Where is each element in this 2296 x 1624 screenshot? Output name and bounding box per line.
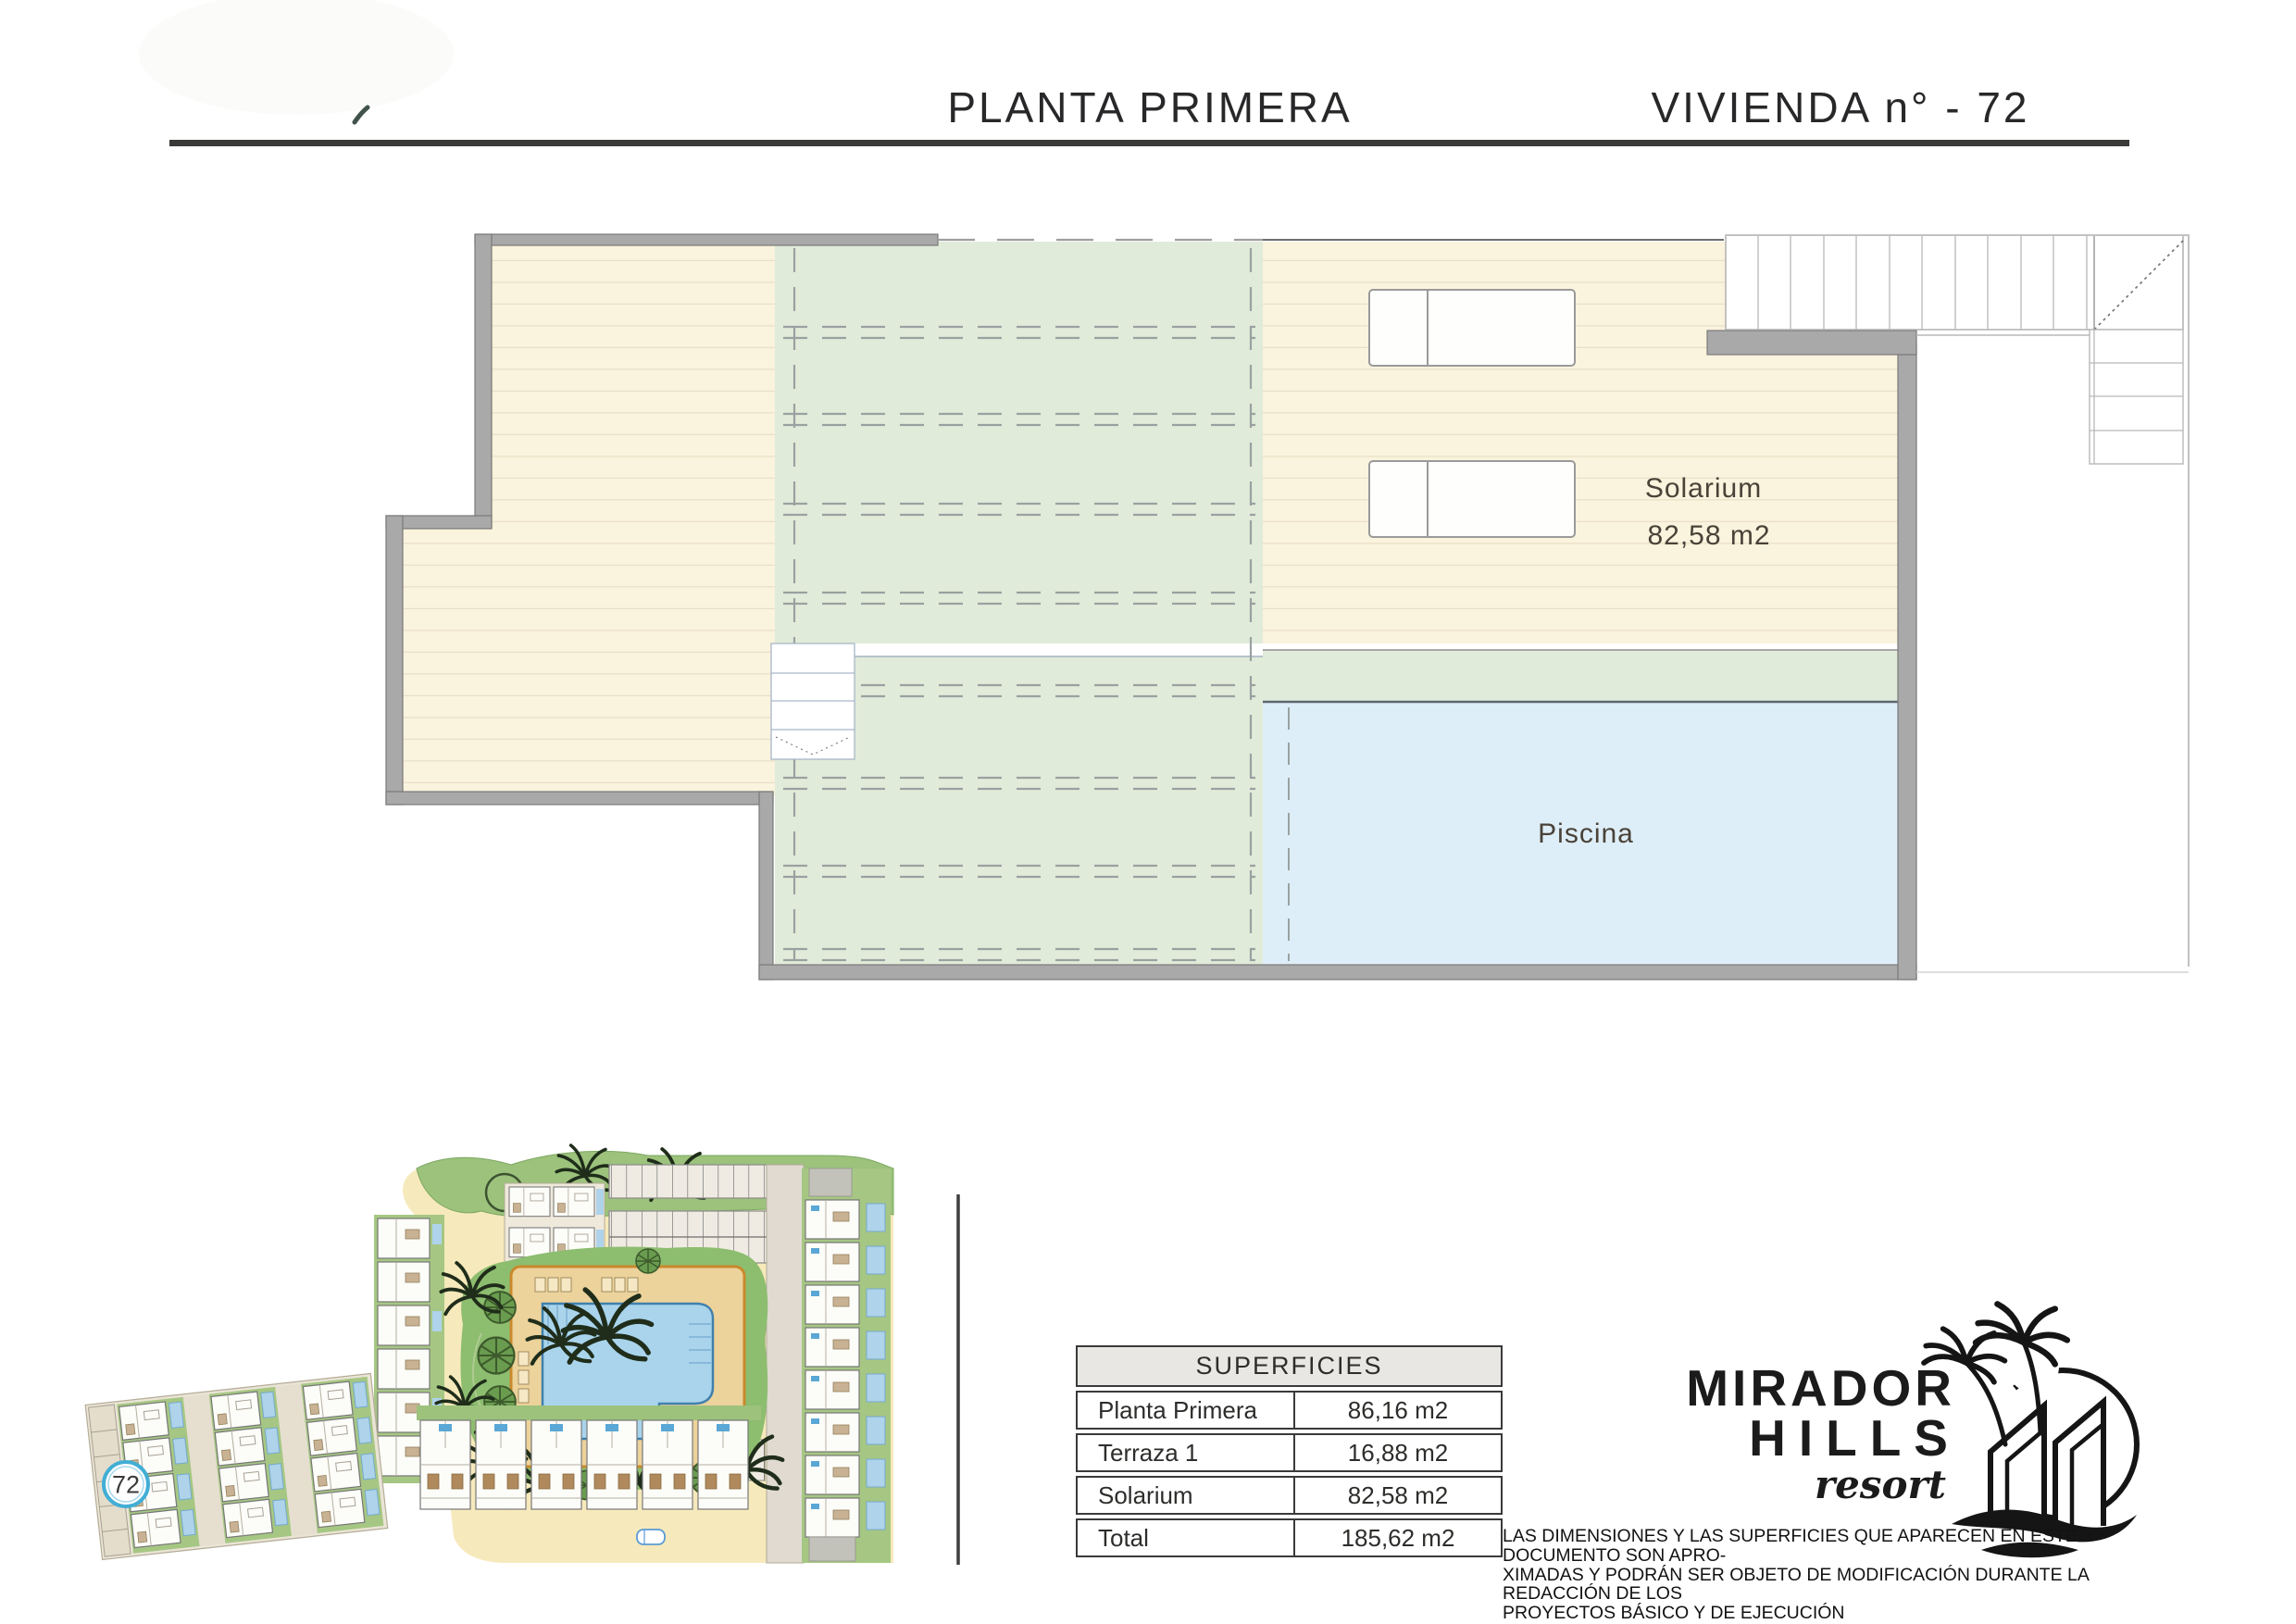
table-row: Terraza 1 16,88 m2 (1076, 1433, 1503, 1472)
disclaimer-line: LAS DIMENSIONES Y LAS SUPERFICIES QUE AP… (1503, 1527, 2151, 1566)
row-label: Solarium (1078, 1478, 1295, 1513)
sheet-title-unit: VIVIENDA n° - 72 (1652, 82, 2030, 132)
interior-stairs (771, 643, 855, 759)
site-plan (85, 1145, 893, 1563)
site-bottom-row (417, 1405, 761, 1509)
plan-sheet: PLANTA PRIMERA VIVIENDA n° - 72 Solarium… (0, 0, 2296, 1624)
row-value: 185,62 m2 (1295, 1520, 1501, 1555)
disclaimer: LAS DIMENSIONES Y LAS SUPERFICIES QUE AP… (1503, 1527, 2151, 1623)
floor-plan (386, 234, 2189, 980)
solarium-area-label: 82,58 m2 (1647, 520, 1770, 552)
row-value: 82,58 m2 (1295, 1478, 1501, 1513)
car-icon (637, 1530, 665, 1544)
disclaimer-line: XIMADAS Y PODRÁN SER OBJETO DE MODIFICAC… (1503, 1566, 2151, 1605)
header-rule (169, 140, 2129, 146)
site-right-wing (802, 1168, 891, 1563)
table-row: Total 185,62 m2 (1076, 1518, 1503, 1557)
logo-name-line1: MIRADOR (1686, 1363, 1955, 1414)
table-row: Planta Primera 86,16 m2 (1076, 1391, 1503, 1430)
pool-label: Piscina (1538, 818, 1634, 850)
table-row: Solarium 82,58 m2 (1076, 1476, 1503, 1515)
logo-wordmark: MIRADOR HILLS resort (1686, 1363, 1955, 1505)
logo-name-line3: resort (1686, 1466, 1955, 1505)
logo-name-line2: HILLS (1686, 1414, 1961, 1462)
row-label: Planta Primera (1078, 1393, 1295, 1428)
superficies-table: SUPERFICIES Planta Primera 86,16 m2 Terr… (1076, 1345, 1503, 1557)
superficies-table-title: SUPERFICIES (1076, 1345, 1503, 1387)
sheet-title-floor: PLANTA PRIMERA (947, 82, 1352, 132)
header-remnant-mark-icon (139, 0, 454, 122)
solarium-label: Solarium (1645, 473, 1762, 505)
disclaimer-line: PROYECTOS BÁSICO Y DE EJECUCIÓN (1503, 1604, 2151, 1623)
site-road (767, 1165, 804, 1563)
row-value: 16,88 m2 (1295, 1435, 1501, 1470)
row-value: 86,16 m2 (1295, 1393, 1501, 1428)
unit-72-badge-number: 72 (112, 1471, 140, 1500)
row-label: Total (1078, 1520, 1295, 1555)
row-label: Terraza 1 (1078, 1435, 1295, 1470)
